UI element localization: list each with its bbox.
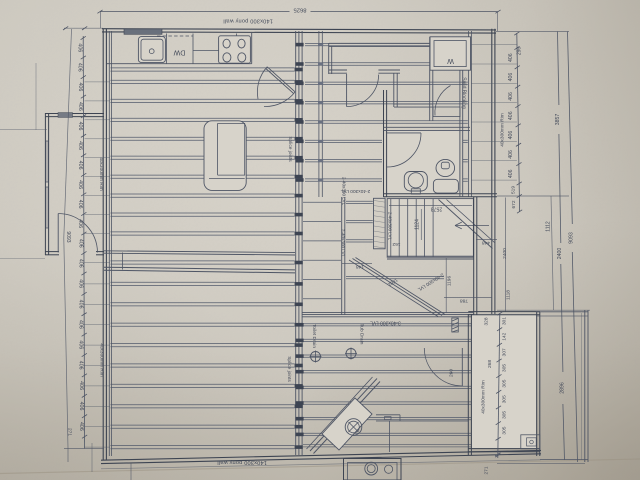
svg-text:8625: 8625 xyxy=(294,7,307,13)
svg-text:162: 162 xyxy=(392,241,400,247)
svg-text:406: 406 xyxy=(77,43,83,52)
svg-text:406: 406 xyxy=(77,82,83,91)
svg-text:268: 268 xyxy=(487,360,493,368)
svg-text:406: 406 xyxy=(77,161,83,170)
svg-text:305: 305 xyxy=(502,426,508,434)
svg-text:1118: 1118 xyxy=(506,290,512,300)
svg-text:2-40x300 LVL: 2-40x300 LVL xyxy=(341,229,346,258)
svg-text:406: 406 xyxy=(78,381,84,390)
svg-text:40x300mm Rim: 40x300mm Rim xyxy=(499,113,505,147)
svg-text:406: 406 xyxy=(508,169,514,178)
svg-text:406: 406 xyxy=(508,53,514,62)
svg-text:2-40x300 LVL: 2-40x300 LVL xyxy=(340,188,370,194)
svg-text:519: 519 xyxy=(510,186,516,194)
svg-text:406: 406 xyxy=(77,63,83,72)
svg-text:406: 406 xyxy=(78,340,84,349)
svg-text:260: 260 xyxy=(449,369,455,377)
svg-text:140x300 pony wall: 140x300 pony wall xyxy=(217,459,267,465)
svg-text:40x300mm Rim: 40x300mm Rim xyxy=(98,343,104,377)
svg-text:305: 305 xyxy=(502,364,508,372)
svg-text:3-40x300 LVL: 3-40x300 LVL xyxy=(370,320,401,326)
svg-text:406: 406 xyxy=(77,259,83,268)
svg-text:2400: 2400 xyxy=(502,248,508,259)
svg-text:Splice joints: Splice joints xyxy=(286,356,292,382)
svg-text:406: 406 xyxy=(77,141,83,150)
svg-text:305: 305 xyxy=(502,411,508,419)
svg-text:406: 406 xyxy=(78,300,84,309)
svg-text:Solid Blocking: Solid Blocking xyxy=(460,77,466,109)
svg-text:406: 406 xyxy=(508,92,514,101)
svg-text:9093: 9093 xyxy=(568,232,574,244)
svg-text:1112: 1112 xyxy=(546,221,552,232)
svg-text:406: 406 xyxy=(77,122,83,131)
svg-text:406: 406 xyxy=(77,279,83,288)
svg-text:148: 148 xyxy=(356,264,364,270)
svg-text:406: 406 xyxy=(78,361,84,370)
svg-text:9093: 9093 xyxy=(65,231,71,242)
svg-text:40x300mm Rim: 40x300mm Rim xyxy=(98,157,104,191)
svg-text:142: 142 xyxy=(502,332,508,340)
svg-text:296: 296 xyxy=(516,47,522,56)
svg-text:448: 448 xyxy=(482,240,490,246)
svg-text:305: 305 xyxy=(502,379,508,387)
svg-text:2896: 2896 xyxy=(560,382,566,394)
svg-text:2578: 2578 xyxy=(431,206,443,212)
svg-text:406: 406 xyxy=(77,102,83,111)
svg-text:406: 406 xyxy=(77,239,83,248)
svg-text:406: 406 xyxy=(78,402,84,411)
svg-text:328: 328 xyxy=(483,317,489,325)
svg-text:406: 406 xyxy=(77,180,83,189)
svg-text:Toilet Drain: Toilet Drain xyxy=(311,324,317,348)
svg-text:406: 406 xyxy=(508,111,514,120)
svg-text:788: 788 xyxy=(460,298,468,304)
svg-text:271: 271 xyxy=(66,428,72,436)
svg-text:406: 406 xyxy=(77,200,83,209)
svg-text:406: 406 xyxy=(508,73,514,82)
svg-text:406: 406 xyxy=(77,219,83,228)
svg-text:271: 271 xyxy=(484,466,490,474)
svg-text:406: 406 xyxy=(78,320,84,329)
svg-text:406: 406 xyxy=(508,131,514,140)
svg-text:305: 305 xyxy=(502,395,508,403)
svg-text:406: 406 xyxy=(78,422,84,431)
svg-text:1124: 1124 xyxy=(415,219,421,230)
svg-text:40x300mm Rim: 40x300mm Rim xyxy=(480,380,486,414)
svg-text:DW: DW xyxy=(173,49,185,56)
svg-text:301: 301 xyxy=(502,317,508,325)
svg-text:Splice joists: Splice joists xyxy=(287,136,293,162)
svg-text:3857: 3857 xyxy=(555,114,561,126)
svg-text:672: 672 xyxy=(511,200,517,208)
svg-text:1196: 1196 xyxy=(447,276,453,287)
svg-text:307: 307 xyxy=(502,348,508,356)
svg-text:2400: 2400 xyxy=(557,248,563,260)
svg-text:Tub Drain: Tub Drain xyxy=(359,324,365,345)
svg-text:W: W xyxy=(447,57,454,64)
svg-text:2-40x300 LVL: 2-40x300 LVL xyxy=(388,212,393,241)
svg-text:406: 406 xyxy=(508,150,514,159)
svg-text:140x300 pony wall: 140x300 pony wall xyxy=(223,18,273,24)
